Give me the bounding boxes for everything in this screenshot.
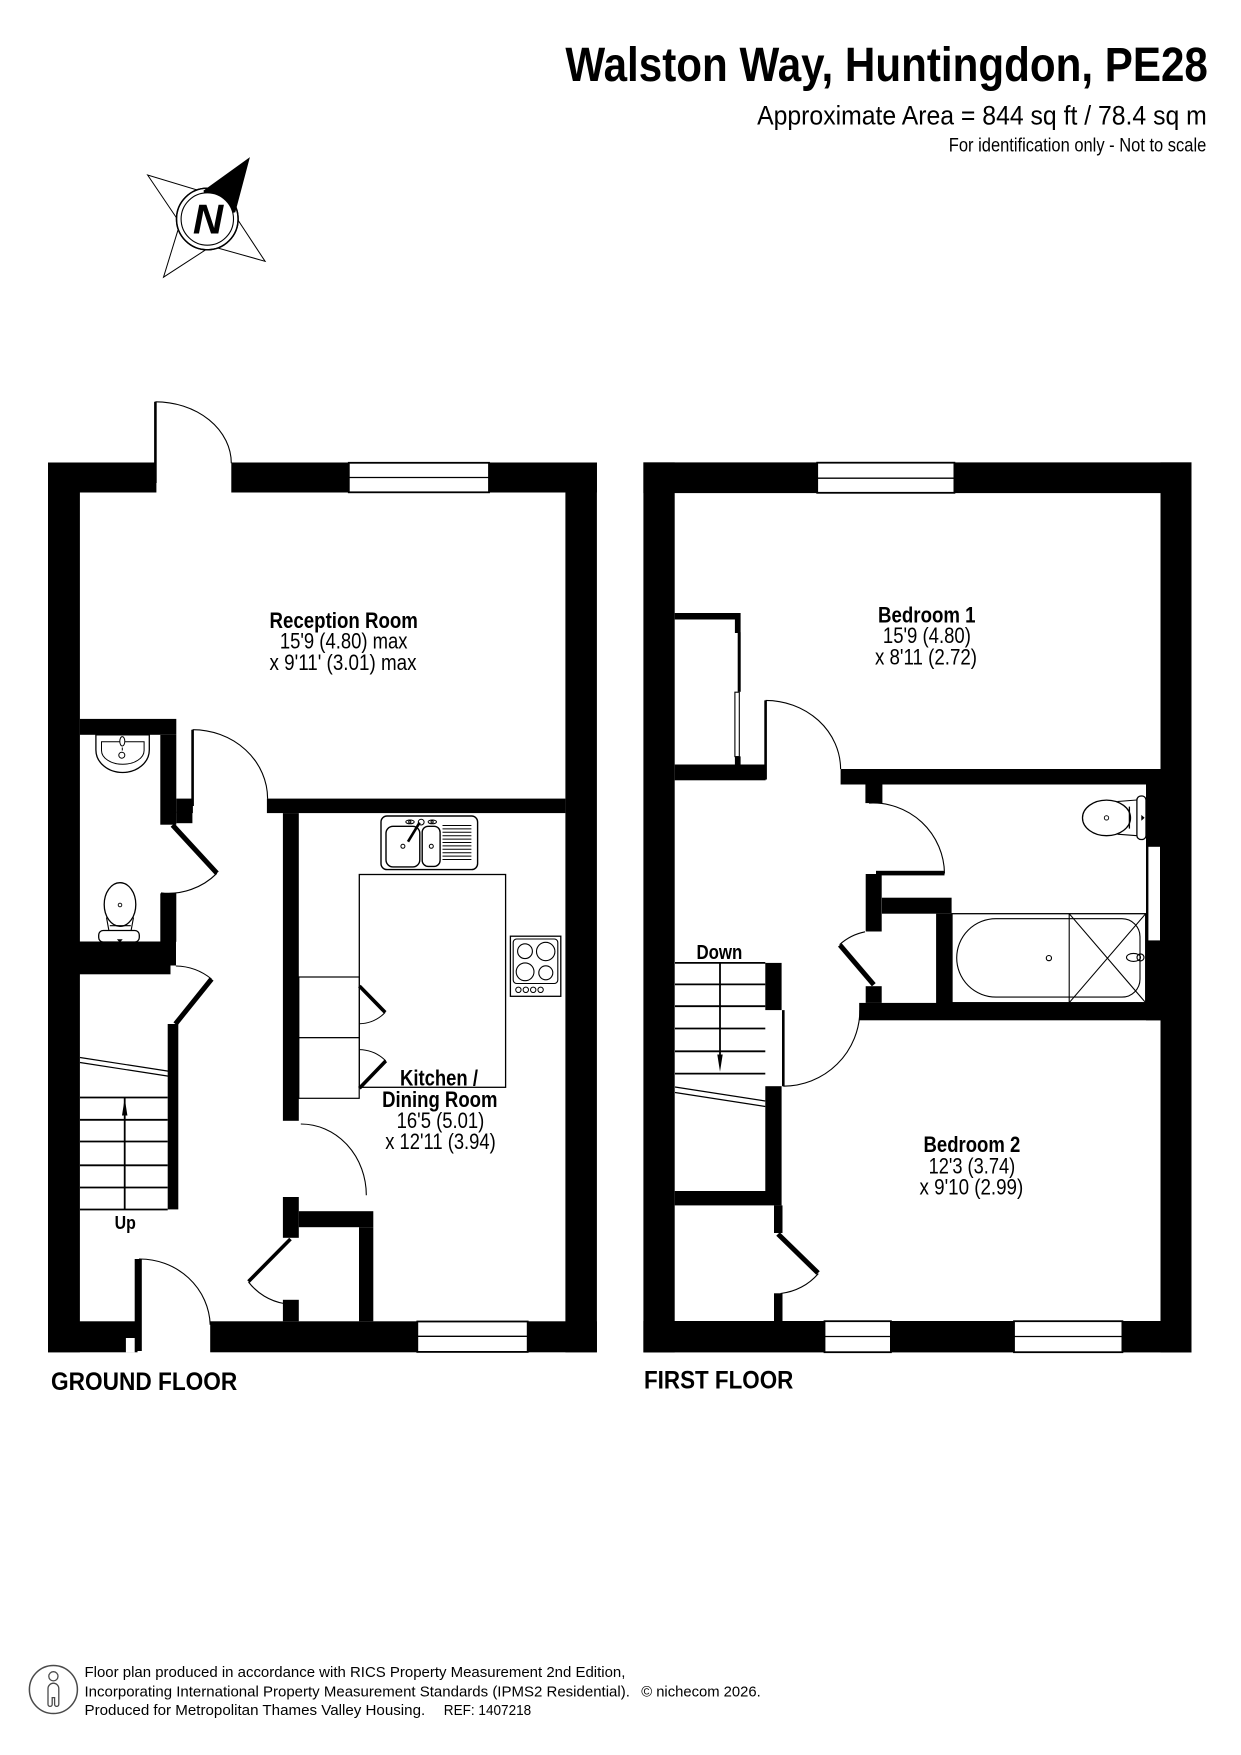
svg-text:For identification only - Not: For identification only - Not to scale	[949, 135, 1207, 157]
svg-text:x 12'11 (3.94): x 12'11 (3.94)	[385, 1129, 496, 1154]
svg-text:Floor plan produced in accorda: Floor plan produced in accordance with R…	[85, 1664, 626, 1681]
svg-text:Approximate Area = 844 sq ft /: Approximate Area = 844 sq ft / 78.4 sq m	[757, 101, 1207, 131]
svg-text:Up: Up	[115, 1213, 136, 1233]
svg-text:REF: 1407218: REF: 1407218	[444, 1702, 531, 1719]
svg-text:Incorporating International Pr: Incorporating International Property Mea…	[85, 1684, 630, 1701]
svg-text:Down: Down	[696, 942, 742, 964]
svg-text:© nichecom 2026.: © nichecom 2026.	[641, 1684, 761, 1701]
svg-text:GROUND FLOOR: GROUND FLOOR	[51, 1368, 237, 1396]
svg-text:x 9'11' (3.01) max: x 9'11' (3.01) max	[270, 650, 418, 675]
svg-text:Produced for Metropolitan Tham: Produced for Metropolitan Thames Valley …	[85, 1702, 426, 1719]
svg-text:FIRST FLOOR: FIRST FLOOR	[644, 1367, 793, 1395]
svg-text:Walston Way, Huntingdon, PE28: Walston Way, Huntingdon, PE28	[565, 38, 1208, 92]
svg-text:x 9'10 (2.99): x 9'10 (2.99)	[920, 1175, 1024, 1200]
svg-text:N: N	[193, 196, 225, 243]
svg-text:x 8'11 (2.72): x 8'11 (2.72)	[875, 644, 977, 669]
